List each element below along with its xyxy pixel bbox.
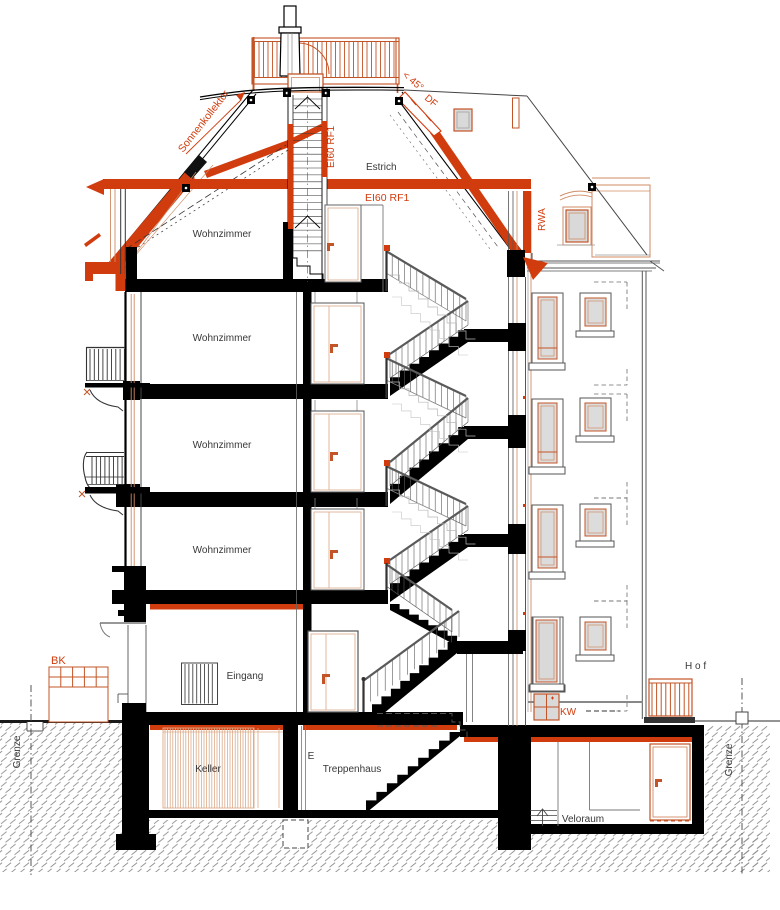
svg-text:Estrich: Estrich <box>366 162 397 173</box>
svg-text:Treppenhaus: Treppenhaus <box>323 764 382 775</box>
svg-text:Eingang: Eingang <box>227 671 264 682</box>
svg-text:E: E <box>308 751 315 762</box>
svg-text:H o f: H o f <box>685 661 706 672</box>
svg-text:EI60 RF1: EI60 RF1 <box>365 192 410 204</box>
svg-text:Grenze: Grenze <box>724 743 735 776</box>
svg-text:Grenze: Grenze <box>12 735 23 768</box>
svg-text:Wohnzimmer: Wohnzimmer <box>193 545 252 556</box>
svg-text:Wohnzimmer: Wohnzimmer <box>193 440 252 451</box>
svg-text:BK: BK <box>51 655 66 667</box>
svg-text:Wohnzimmer: Wohnzimmer <box>193 229 252 240</box>
svg-text:Keller: Keller <box>195 764 221 775</box>
svg-text:Wohnzimmer: Wohnzimmer <box>193 333 252 344</box>
svg-text:EI60 RF1: EI60 RF1 <box>326 125 337 168</box>
svg-text:RWA: RWA <box>537 208 548 231</box>
svg-text:KW: KW <box>560 707 577 718</box>
svg-text:Veloraum: Veloraum <box>562 814 604 825</box>
